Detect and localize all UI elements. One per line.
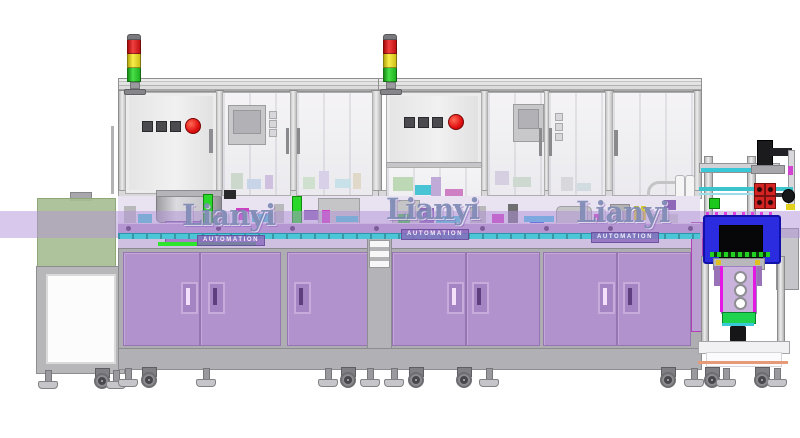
linear-feeder-track — [158, 242, 256, 246]
column-edge-magenta — [753, 266, 756, 312]
leveling-foot — [479, 368, 499, 387]
component-block — [265, 175, 273, 189]
component-block — [303, 177, 315, 189]
leveling-foot — [767, 368, 787, 387]
signal-lamp-green — [383, 68, 397, 82]
caster-wheel — [139, 367, 159, 388]
door-handle[interactable] — [614, 130, 618, 156]
door-handle[interactable] — [286, 128, 289, 154]
leveling-foot — [716, 368, 736, 387]
linear-rail — [699, 187, 793, 191]
leveling-foot — [196, 368, 216, 387]
hmi-panel — [228, 105, 266, 145]
component-block — [561, 177, 573, 191]
fascia-bolt — [608, 226, 613, 231]
panel-button[interactable] — [170, 121, 181, 132]
signal-tower — [127, 34, 141, 95]
component-block — [513, 177, 531, 187]
module2-window — [548, 92, 606, 196]
signal-lamp-yellow — [383, 54, 397, 68]
component-block — [664, 200, 676, 210]
door-handle[interactable] — [209, 129, 213, 153]
leveling-foot — [384, 368, 404, 387]
module2-control-door — [386, 92, 482, 166]
hmi-button — [555, 113, 563, 121]
tool-cylinder — [730, 326, 746, 342]
infeed-stand-panel — [46, 274, 116, 364]
fascia-bolt — [688, 226, 693, 231]
column-hole — [734, 297, 747, 310]
signal-lamp-yellow — [127, 54, 141, 68]
column-edge-magenta — [720, 266, 723, 312]
panel-button[interactable] — [156, 121, 167, 132]
component-block — [495, 171, 509, 185]
caster-wheel — [406, 367, 426, 388]
hmi-button — [555, 133, 563, 141]
panel-button[interactable] — [142, 121, 153, 132]
caster-wheel — [338, 367, 358, 388]
cabinet-door-handle[interactable] — [208, 282, 225, 314]
component-block — [247, 179, 261, 189]
module2-window — [487, 92, 545, 196]
hmi-button — [269, 120, 277, 128]
leveling-foot — [118, 368, 138, 387]
signal-lamp-red — [127, 40, 141, 54]
fascia-bolt — [216, 226, 221, 231]
infeed-stand — [36, 266, 125, 374]
enclosure-top-rail — [378, 78, 702, 92]
flange-bolt — [755, 260, 760, 265]
hmi-button — [555, 123, 563, 131]
hmi-button — [269, 129, 277, 137]
module1-control-door — [125, 92, 217, 194]
panel-button[interactable] — [404, 117, 415, 128]
leveling-foot — [684, 368, 704, 387]
fascia-bolt — [480, 226, 485, 231]
flange-bolt — [716, 260, 721, 265]
emergency-stop-button[interactable] — [448, 114, 464, 130]
fascia-bolt — [126, 226, 131, 231]
junction-vent-slats — [369, 240, 390, 268]
door-handle[interactable] — [549, 128, 552, 156]
component-block — [577, 183, 591, 191]
caster-wheel — [454, 367, 474, 388]
component-block — [319, 171, 329, 189]
cabinet-door-handle[interactable] — [623, 282, 640, 314]
component-block — [335, 179, 351, 188]
clamp-assembly — [754, 183, 776, 209]
fascia-bolt — [544, 226, 549, 231]
tower-stem — [386, 82, 396, 89]
cabinet-door-handle[interactable] — [598, 282, 615, 314]
panel-button[interactable] — [432, 117, 443, 128]
bottle — [685, 175, 695, 197]
component-block — [353, 173, 361, 189]
component-block — [786, 204, 795, 210]
component-block — [393, 177, 413, 191]
tower-base — [124, 89, 146, 95]
panel-button[interactable] — [418, 117, 429, 128]
cabinet-door-handle[interactable] — [181, 282, 198, 314]
signal-lamp-green — [127, 68, 141, 82]
module2-window — [612, 92, 695, 196]
component-block — [231, 173, 243, 189]
module1-window — [222, 92, 291, 196]
cabinet-door-handle[interactable] — [472, 282, 489, 314]
motor-bracket — [751, 165, 785, 174]
station-table-panel — [706, 352, 782, 367]
rail-carriage — [788, 166, 793, 175]
signal-tower — [383, 34, 397, 95]
leveling-foot — [318, 368, 338, 387]
leveling-foot — [360, 368, 380, 387]
door-handle[interactable] — [297, 128, 300, 154]
adjust-knob[interactable] — [782, 189, 795, 203]
tower-stem — [130, 82, 140, 89]
machine-render: Lianyi AUTOMATION Lianyi AUTOMATION Lian… — [0, 0, 800, 438]
enclosure-top-rail — [118, 78, 388, 92]
emergency-stop-button[interactable] — [185, 118, 201, 134]
signal-lamp-red — [383, 40, 397, 54]
caster-wheel — [658, 367, 678, 388]
station-leg — [777, 256, 785, 344]
bottle — [675, 175, 685, 197]
tower-base — [380, 89, 402, 95]
component-block — [224, 190, 236, 199]
cabinet-door-handle[interactable] — [294, 282, 311, 314]
belt-strip-green — [710, 252, 770, 257]
fascia-bolt — [290, 226, 295, 231]
cabinet-door-handle[interactable] — [447, 282, 464, 314]
leveling-foot — [38, 370, 58, 389]
station-leg — [701, 256, 709, 344]
component-block — [415, 185, 431, 195]
fascia-bolt — [374, 226, 379, 231]
sensor-block-green — [709, 198, 720, 209]
hmi-button — [269, 111, 277, 119]
column-hole — [734, 284, 747, 297]
door-handle[interactable] — [539, 128, 542, 156]
cable-duct — [111, 126, 114, 194]
table-trim-salmon — [698, 361, 788, 364]
conveyor-rail-cyan — [118, 233, 700, 239]
column-hole — [734, 271, 747, 284]
module1-window — [296, 92, 373, 196]
